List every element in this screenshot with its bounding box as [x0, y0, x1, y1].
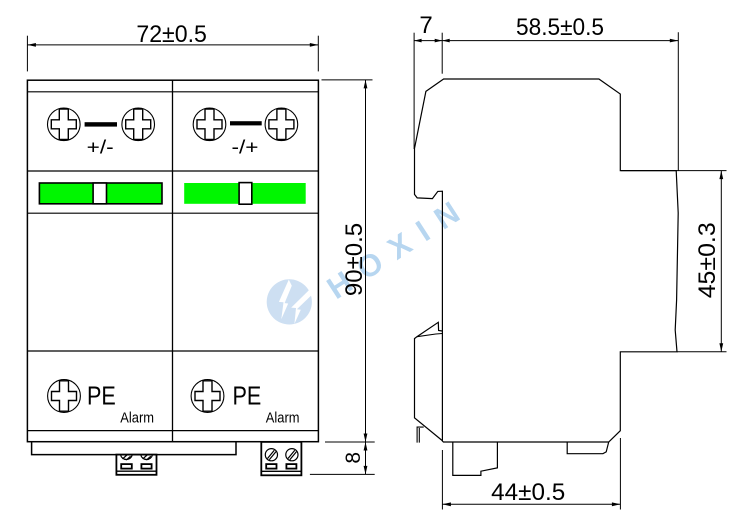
svg-text:8: 8 [342, 452, 365, 464]
svg-text:PE: PE [87, 381, 116, 411]
svg-text:45±0.3: 45±0.3 [694, 222, 721, 298]
svg-text:44±0.5: 44±0.5 [491, 479, 565, 506]
svg-text:-/+: -/+ [232, 138, 259, 159]
svg-text:+/-: +/- [87, 138, 114, 159]
svg-text:90±0.5: 90±0.5 [341, 223, 368, 296]
svg-text:PE: PE [233, 381, 262, 411]
svg-text:Alarm: Alarm [120, 409, 154, 426]
svg-text:72±0.5: 72±0.5 [136, 21, 207, 48]
svg-text:58.5±0.5: 58.5±0.5 [516, 14, 604, 41]
svg-text:7: 7 [419, 12, 432, 39]
svg-text:Alarm: Alarm [266, 409, 300, 426]
